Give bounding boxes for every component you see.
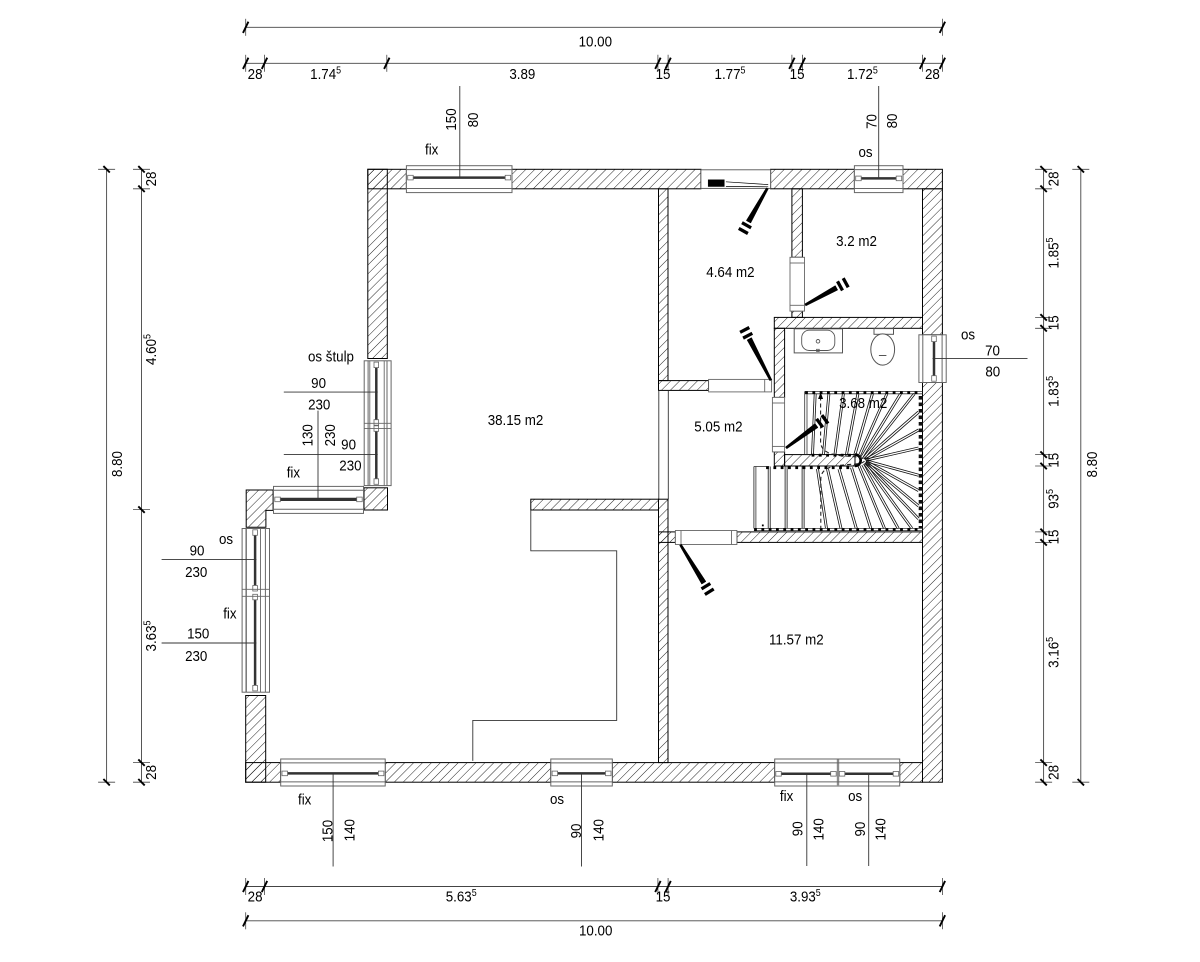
svg-text:38.15 m2: 38.15 m2 (488, 412, 544, 429)
svg-text:os štulp: os štulp (308, 349, 354, 366)
svg-text:140: 140 (873, 818, 890, 840)
svg-text:90: 90 (790, 821, 807, 836)
svg-text:os: os (961, 327, 975, 344)
svg-text:140: 140 (591, 819, 608, 841)
svg-text:3.2 m2: 3.2 m2 (836, 234, 877, 251)
svg-text:130: 130 (300, 424, 317, 446)
svg-text:os: os (848, 788, 862, 805)
svg-text:15: 15 (1046, 529, 1063, 544)
svg-text:230: 230 (322, 424, 339, 446)
svg-text:230: 230 (185, 648, 207, 665)
svg-text:os: os (550, 791, 564, 808)
svg-text:15: 15 (656, 66, 671, 83)
svg-text:15: 15 (1046, 453, 1063, 468)
svg-text:15: 15 (656, 889, 671, 906)
svg-text:70: 70 (864, 114, 881, 129)
svg-text:90: 90 (568, 823, 585, 838)
svg-text:140: 140 (342, 819, 359, 841)
svg-text:fix: fix (287, 465, 300, 482)
svg-text:3.89: 3.89 (509, 66, 535, 83)
svg-text:150: 150 (187, 626, 209, 643)
svg-text:90: 90 (311, 376, 326, 393)
svg-text:80: 80 (884, 113, 901, 128)
svg-text:os: os (859, 145, 873, 162)
svg-text:15: 15 (790, 66, 805, 83)
svg-text:11.57 m2: 11.57 m2 (769, 632, 824, 649)
svg-text:230: 230 (308, 397, 330, 414)
svg-text:90: 90 (852, 822, 869, 837)
svg-text:fix: fix (223, 606, 236, 623)
svg-text:fix: fix (425, 142, 438, 159)
svg-text:10.00: 10.00 (579, 34, 612, 51)
svg-text:28: 28 (143, 765, 160, 780)
svg-text:140: 140 (811, 818, 828, 840)
svg-text:10.00: 10.00 (579, 923, 612, 940)
svg-text:230: 230 (339, 458, 361, 475)
svg-text:80: 80 (466, 112, 483, 127)
svg-text:90: 90 (341, 437, 356, 454)
svg-text:28: 28 (143, 171, 160, 186)
svg-text:3.68 m2: 3.68 m2 (839, 396, 887, 413)
svg-text:150: 150 (320, 820, 337, 842)
svg-text:8.80: 8.80 (109, 451, 126, 477)
svg-text:70: 70 (985, 343, 1000, 360)
svg-text:90: 90 (190, 543, 205, 560)
svg-text:28: 28 (248, 889, 263, 906)
svg-text:28: 28 (925, 66, 940, 83)
svg-text:os: os (219, 531, 233, 548)
svg-text:28: 28 (248, 66, 263, 83)
svg-text:fix: fix (780, 788, 793, 805)
svg-text:28: 28 (1046, 171, 1063, 186)
svg-text:5.05 m2: 5.05 m2 (694, 419, 742, 436)
svg-text:150: 150 (443, 108, 460, 130)
svg-text:230: 230 (185, 565, 207, 582)
svg-text:15: 15 (1046, 315, 1063, 330)
svg-text:28: 28 (1046, 765, 1063, 780)
svg-text:8.80: 8.80 (1084, 451, 1101, 477)
svg-text:4.64 m2: 4.64 m2 (706, 264, 754, 281)
svg-text:80: 80 (985, 364, 1000, 381)
svg-text:fix: fix (298, 792, 311, 809)
